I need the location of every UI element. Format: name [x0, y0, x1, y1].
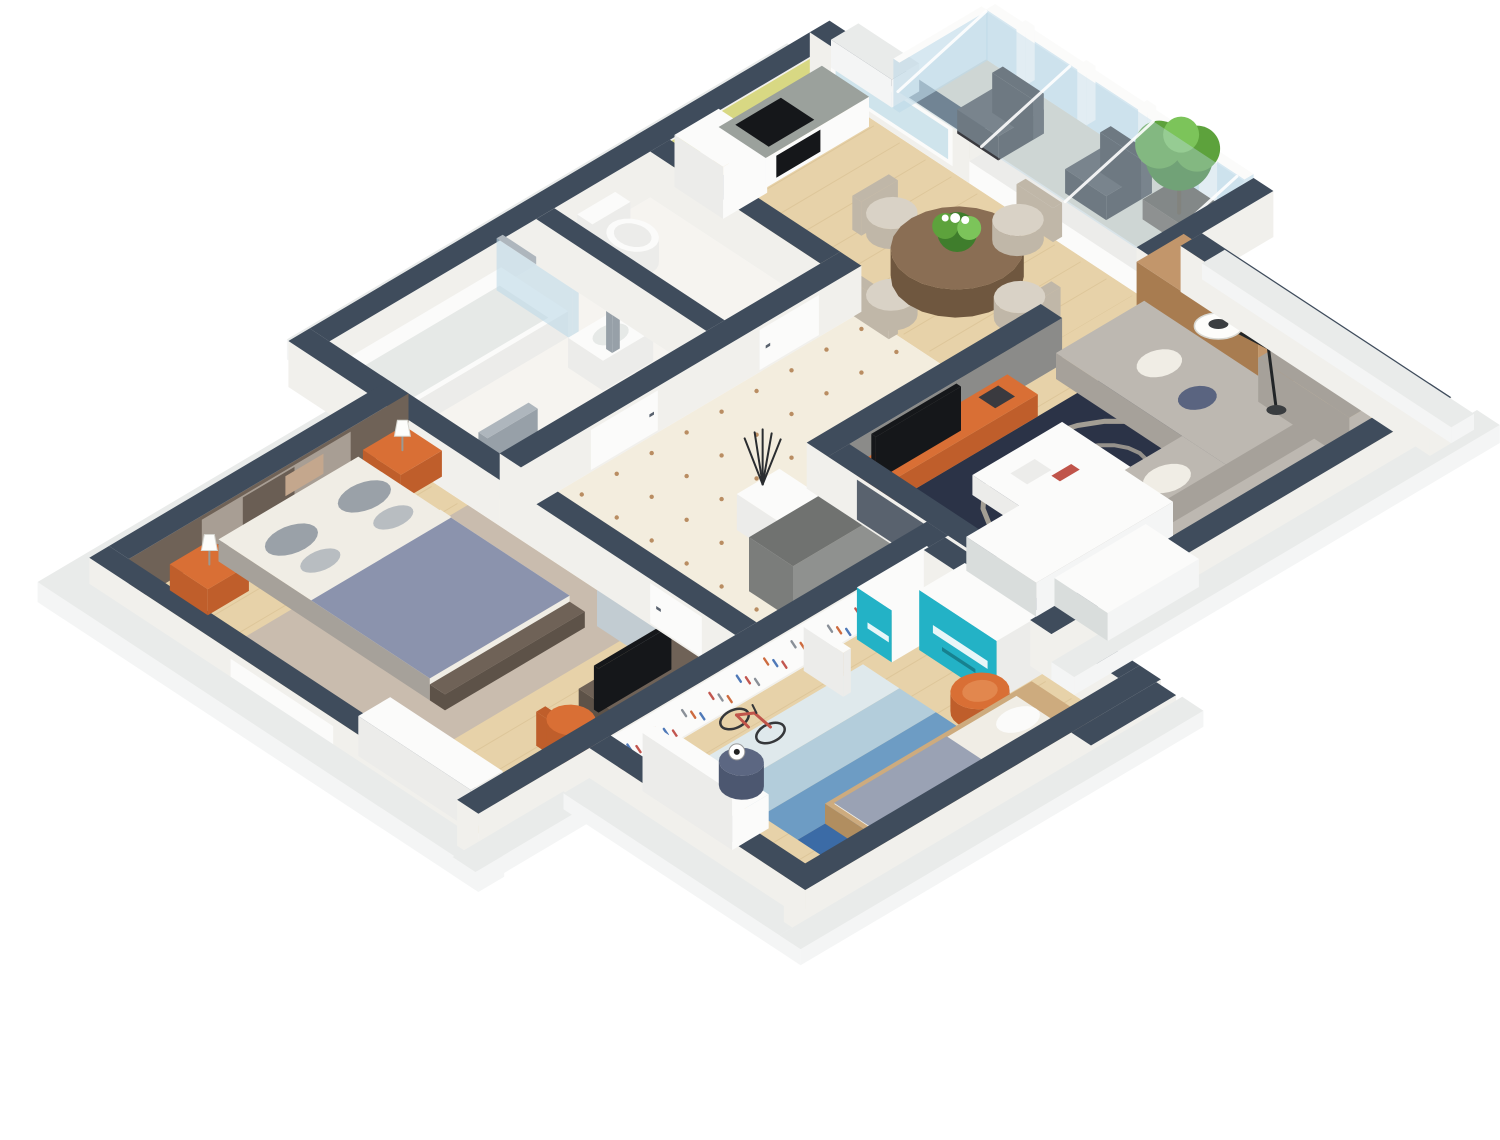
tile-dot — [754, 389, 758, 393]
plant-flower — [961, 216, 969, 224]
bike-frame — [736, 713, 754, 715]
tile-dot — [615, 515, 619, 519]
tile-dot — [859, 327, 863, 331]
floor-lamp-base — [1266, 405, 1286, 415]
lamp-shade — [394, 420, 410, 436]
dining-chair-back-face-sw — [852, 196, 861, 236]
tile-dot — [859, 370, 863, 374]
tile-dot — [719, 453, 723, 457]
floor-plan-3d-render — [0, 0, 1500, 1140]
tile-dot — [754, 476, 758, 480]
tile-dot — [789, 412, 793, 416]
tile-dot — [684, 518, 688, 522]
tile-dot — [684, 561, 688, 565]
tile-dot — [684, 474, 688, 478]
plant-flower — [950, 213, 960, 223]
tile-dot — [754, 607, 758, 611]
winter-garden-glass-end-face-sw — [893, 59, 899, 113]
tile-dot — [824, 391, 828, 395]
soccer-ball-patch — [734, 749, 740, 755]
tile-dot — [649, 538, 653, 542]
floor-plan-stage — [0, 0, 1500, 1140]
bedroom-tv-face-sw — [594, 666, 599, 713]
plant-flower — [942, 215, 949, 222]
tile-dot — [789, 368, 793, 372]
faucet-face-sw — [606, 311, 612, 353]
tile-dot — [789, 456, 793, 460]
tile-dot — [894, 350, 898, 354]
lamp-shade — [201, 535, 217, 551]
tile-dot — [649, 495, 653, 499]
tile-dot — [615, 472, 619, 476]
tile-dot — [824, 347, 828, 351]
tile-dot — [719, 410, 723, 414]
plant-leaves — [957, 216, 981, 240]
tile-dot — [580, 492, 584, 496]
tile-dot — [719, 541, 723, 545]
tile-dot — [684, 430, 688, 434]
tile-dot — [719, 497, 723, 501]
dining-chair-back-face-se — [1053, 203, 1062, 242]
tile-dot — [649, 451, 653, 455]
kids-door-leaf-face-se — [843, 648, 851, 697]
tile-dot — [719, 584, 723, 588]
